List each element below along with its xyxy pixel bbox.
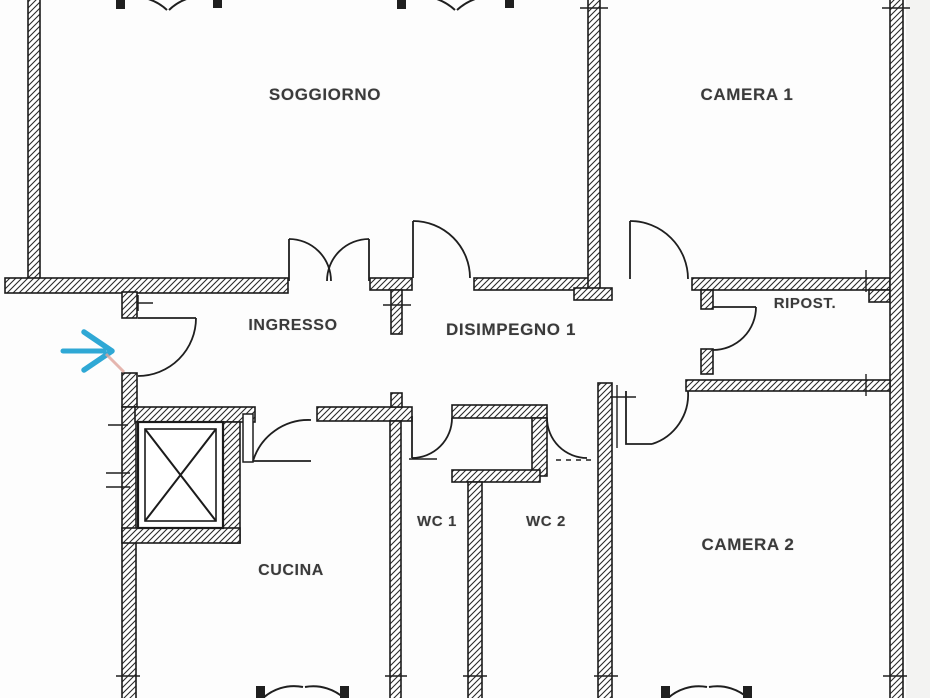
window-camera2: [662, 686, 751, 698]
room-label-ingresso: INGRESSO: [248, 317, 337, 335]
room-label-wc1: WC 1: [417, 513, 457, 530]
ripostiglio-door: [713, 307, 756, 350]
camera1-door: [630, 221, 688, 279]
cucina-door: [243, 414, 311, 462]
camera2-door: [617, 385, 688, 448]
entrance-arrow-icon: [63, 332, 112, 370]
room-label-camera1: CAMERA 1: [701, 85, 794, 105]
elevator-icon: [138, 422, 223, 528]
wc1-door: [409, 416, 452, 459]
room-label-wc2: WC 2: [526, 513, 566, 530]
window-soggiorno-left: [117, 0, 221, 10]
wall-tick-marks: [106, 8, 910, 676]
wc2-door: [547, 418, 592, 460]
windows: [117, 0, 751, 698]
window-soggiorno-right: [398, 0, 513, 10]
room-label-camera2: CAMERA 2: [702, 535, 795, 555]
soggiorno-single-door: [413, 221, 470, 278]
entry-door: [138, 295, 196, 376]
scan-margin: [906, 0, 930, 698]
room-label-soggiorno: SOGGIORNO: [269, 85, 381, 105]
entrance-red-mark: [106, 354, 124, 372]
soggiorno-double-door: [289, 239, 369, 281]
room-label-ripostiglio: RIPOST.: [774, 295, 837, 312]
room-label-cucina: CUCINA: [258, 562, 324, 580]
floor-plan: SOGGIORNO CAMERA 1 INGRESSO DISIMPEGNO 1…: [0, 0, 930, 698]
room-label-disimpegno1: DISIMPEGNO 1: [446, 320, 576, 340]
window-cucina: [257, 686, 348, 698]
